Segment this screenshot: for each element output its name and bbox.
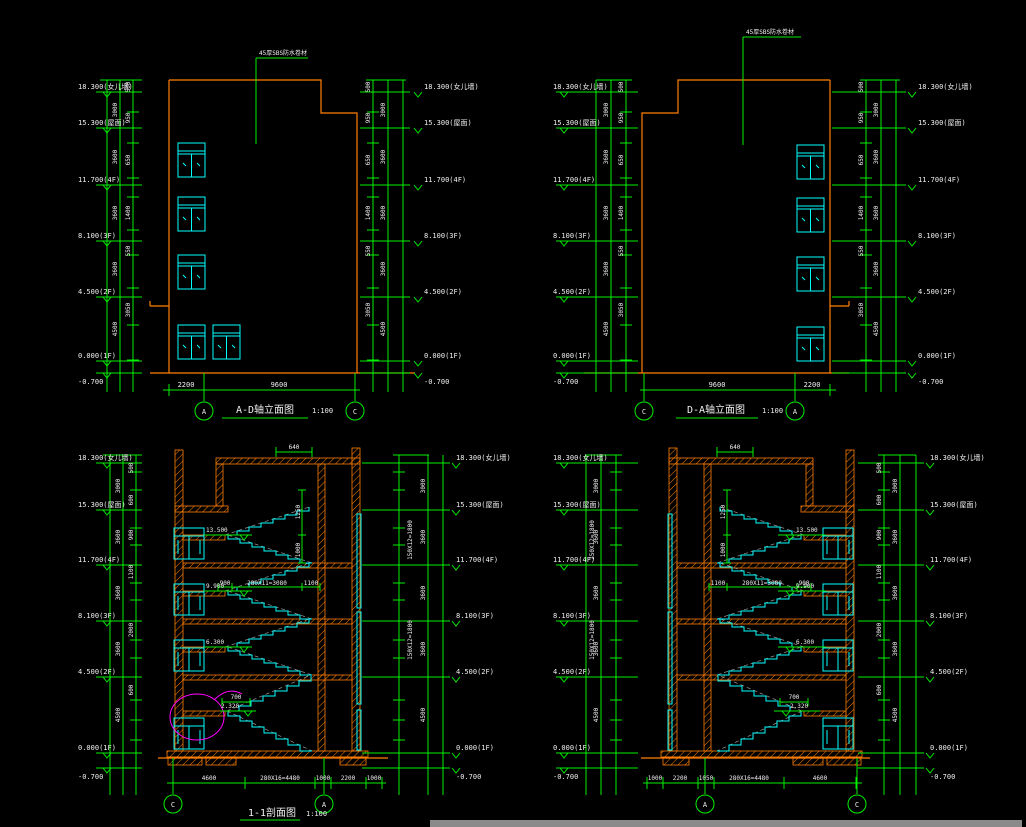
level-label: 4.500(2F): [78, 668, 116, 676]
dim-label: 950: [858, 112, 865, 123]
window: [797, 327, 824, 361]
dim-label: 1000: [367, 775, 382, 782]
scale-label: 1:100: [312, 407, 333, 415]
dim-label: 150X12=1800: [407, 620, 414, 660]
dim-label: 550: [618, 245, 625, 256]
wall: [704, 464, 711, 751]
dim-label: 900: [128, 529, 135, 540]
window: [178, 197, 205, 231]
elevation-a-d: 45厚SBS防水卷材 18.300(女儿墙) 15.300(屋面) 11.700…: [78, 49, 479, 420]
dim-label: 1000: [720, 542, 727, 557]
level-label: 4.500(2F): [553, 668, 591, 676]
dim-label: 600: [128, 684, 135, 695]
level-label: 0.000(1F): [78, 352, 116, 360]
horizontal-scrollbar[interactable]: [430, 820, 1022, 827]
dim-label: 600: [876, 684, 883, 695]
level-label: 18.300(女儿墙): [930, 453, 985, 462]
dim-label: 1000: [316, 775, 331, 782]
level-label: 8.100(3F): [553, 232, 591, 240]
landing-level-label: 9.900: [206, 583, 224, 590]
dim-label: 3600: [112, 205, 119, 220]
level-label: 4.500(2F): [456, 668, 494, 676]
window: [213, 325, 240, 359]
scale-label: 1:100: [306, 810, 327, 818]
wall: [806, 464, 813, 506]
leader-line: [743, 37, 801, 145]
level-label: 8.100(3F): [456, 612, 494, 620]
level-label: 4.500(2F): [78, 288, 116, 296]
landing-level-label: 9.900: [796, 583, 814, 590]
level-label: 8.100(3F): [424, 232, 462, 240]
level-label: -0.700: [424, 378, 449, 386]
dim-label: 3000: [603, 102, 610, 117]
dim-chain-right: [866, 80, 896, 392]
level-label: 15.300(屋面): [78, 501, 126, 509]
dim-label: 700: [789, 694, 800, 701]
dim-label: 3050: [618, 302, 625, 317]
roof-slab: [669, 458, 813, 464]
level-label: 11.700(4F): [78, 176, 120, 184]
level-label: -0.700: [78, 378, 103, 386]
level-label: 15.300(屋面): [930, 501, 978, 509]
level-label: 18.300(女儿墙): [456, 453, 511, 462]
window: [178, 255, 205, 289]
dim-chain-right: [373, 80, 403, 392]
dim-label: 9600: [709, 381, 726, 389]
dim-label: 650: [858, 154, 865, 165]
dim-label: 3600: [603, 149, 610, 164]
landing-level-label: 2.320: [790, 703, 808, 710]
level-label: 8.100(3F): [78, 612, 116, 620]
grid-bubble-label: A: [322, 801, 327, 809]
dim-label: 640: [289, 444, 300, 451]
dim-label: 3600: [112, 149, 119, 164]
level-label: 8.100(3F): [918, 232, 956, 240]
dim-label: 3600: [380, 149, 387, 164]
dim-label: 3000: [593, 478, 600, 493]
dim-ticks: [858, 455, 924, 768]
dim-label: 600: [876, 494, 883, 505]
floor-slab: [183, 675, 352, 680]
level-marks: [414, 92, 422, 378]
landing-slab: [183, 711, 225, 716]
stair-dim-label: 1100: [304, 580, 319, 587]
level-label: -0.700: [553, 378, 578, 386]
section-2: 640 1250 1000 1100 280X11=3080 900 13.50…: [553, 444, 985, 813]
window: [178, 325, 205, 359]
stair-dim-label: 1100: [711, 580, 726, 587]
dim-ticks: [832, 80, 906, 373]
dim-label: 1000: [295, 542, 302, 557]
scale-label: 1:100: [762, 407, 783, 415]
landing-level-label: 13.500: [796, 527, 818, 534]
level-label: 8.100(3F): [78, 232, 116, 240]
dim-label: 1250: [720, 504, 727, 519]
dim-label: 1100: [128, 564, 135, 579]
dim-label: 3600: [873, 205, 880, 220]
dim-label: 640: [730, 444, 741, 451]
floor-slab: [677, 619, 846, 624]
landing-level-label: 6.300: [206, 639, 224, 646]
level-label: 4.500(2F): [553, 288, 591, 296]
level-marks: [908, 92, 916, 378]
dim-label: 4500: [380, 321, 387, 336]
dim-label: 1050: [699, 775, 714, 782]
dim-label: 2200: [178, 381, 195, 389]
dim-label: 3600: [115, 529, 122, 544]
grid-bubble-label: C: [353, 408, 357, 416]
level-label: 4.500(2F): [930, 668, 968, 676]
level-label: 18.300(女儿墙): [78, 453, 133, 462]
dim-label: 1400: [365, 205, 372, 220]
floor-slab: [183, 563, 352, 568]
dim-label: 3000: [873, 102, 880, 117]
dim-chain-right: [884, 455, 916, 795]
dim-label: 1400: [125, 205, 132, 220]
dim-label: 4600: [813, 775, 828, 782]
dim-label: 2200: [341, 775, 356, 782]
leader-line: [256, 58, 308, 144]
section-1-1: 640 1250 1000 900 280X11=3080 1100 13.50…: [78, 444, 511, 820]
dim-label: 150X12=1800: [589, 620, 596, 660]
dim-label: 3000: [115, 478, 122, 493]
building-outline: [169, 80, 357, 373]
level-label: 15.300(屋面): [918, 119, 966, 127]
dim-label: 3600: [873, 261, 880, 276]
dim-label: 3600: [603, 261, 610, 276]
dim-label: 2200: [673, 775, 688, 782]
level-label: 15.300(屋面): [424, 119, 472, 127]
dim-label: 150X12=1800: [407, 520, 414, 560]
dim-label: 4600: [202, 775, 217, 782]
dim-label: 3600: [892, 529, 899, 544]
level-label: -0.700: [78, 773, 103, 781]
dim-label: 150X12=1800: [589, 520, 596, 560]
grid-bubble-label: A: [703, 801, 708, 809]
level-label: 0.000(1F): [918, 352, 956, 360]
level-label: -0.700: [456, 773, 481, 781]
level-label: 11.700(4F): [456, 556, 498, 564]
floor-slab: [183, 619, 352, 624]
wall: [175, 450, 183, 751]
dim-chain-right: [399, 455, 443, 795]
dim-label: 3600: [603, 205, 610, 220]
stair-flight: [228, 711, 312, 751]
dim-label: 650: [618, 154, 625, 165]
dim-label: 9600: [271, 381, 288, 389]
dim-label: 1400: [618, 205, 625, 220]
dim-label: 4500: [892, 707, 899, 722]
cad-viewport[interactable]: 45厚SBS防水卷材 18.300(女儿墙) 15.300(屋面) 11.700…: [0, 0, 1026, 827]
level-label: 0.000(1F): [424, 352, 462, 360]
landing-level-label: 13.500: [206, 527, 228, 534]
level-label: 11.700(4F): [424, 176, 466, 184]
stair-flight: [717, 711, 801, 751]
dim-label: 500: [618, 81, 625, 92]
dim-label: 3000: [420, 478, 427, 493]
roof-slab: [216, 458, 360, 464]
dim-label: 3600: [420, 529, 427, 544]
cad-window: 45厚SBS防水卷材 18.300(女儿墙) 15.300(屋面) 11.700…: [0, 0, 1026, 827]
grid-bubble-label: A: [793, 408, 798, 416]
dim-label: 950: [125, 112, 132, 123]
dim-label: 500: [876, 462, 883, 473]
dim-label: 550: [125, 245, 132, 256]
stair-dim-label: 280X11=3080: [247, 580, 287, 587]
dim-label: 280X16=4480: [260, 775, 300, 782]
wall: [669, 448, 677, 751]
dim-label: 900: [876, 529, 883, 540]
dim-label: 4500: [593, 707, 600, 722]
dim-label: 3600: [420, 641, 427, 656]
dim-label: 3600: [892, 641, 899, 656]
level-label: 0.000(1F): [930, 744, 968, 752]
dim-label: 700: [231, 694, 242, 701]
dim-label: 950: [618, 112, 625, 123]
dim-label: 2200: [804, 381, 821, 389]
dim-label: 3600: [420, 585, 427, 600]
dim-label: 3050: [858, 302, 865, 317]
level-label: 0.000(1F): [456, 744, 494, 752]
roof-note: 45厚SBS防水卷材: [746, 28, 794, 36]
level-label: 18.300(女儿墙): [553, 453, 608, 462]
dim-label: 4500: [420, 707, 427, 722]
roof-slab: [175, 506, 228, 512]
dim-label: 3600: [380, 205, 387, 220]
landing-level-label: 6.300: [796, 639, 814, 646]
window: [797, 198, 824, 232]
level-label: -0.700: [930, 773, 955, 781]
wall: [216, 464, 223, 506]
dim-label: 3600: [115, 641, 122, 656]
dim-label: 4500: [112, 321, 119, 336]
level-label: 11.700(4F): [78, 556, 120, 564]
grid-bubble-label: C: [171, 801, 175, 809]
level-label: 0.000(1F): [553, 744, 591, 752]
dim-label: 3600: [112, 261, 119, 276]
dim-label: 4500: [873, 321, 880, 336]
window: [178, 143, 205, 177]
drawing-title: D-A轴立面图: [687, 403, 745, 416]
dim-label: 3600: [873, 149, 880, 164]
ground-slab: [167, 751, 368, 757]
level-label: 11.700(4F): [918, 176, 960, 184]
building-outline: [642, 80, 830, 373]
dim-label: 3000: [112, 102, 119, 117]
drawing-title: A-D轴立面图: [236, 403, 294, 416]
dim-label: 3600: [593, 585, 600, 600]
dim-label: 1100: [876, 564, 883, 579]
dim-label: 4500: [603, 321, 610, 336]
dim-label: 3000: [892, 478, 899, 493]
level-label: 8.100(3F): [930, 612, 968, 620]
floor-slab: [677, 563, 846, 568]
dim-label: 1250: [295, 504, 302, 519]
dim-label: 2000: [128, 622, 135, 637]
level-label: 18.300(女儿墙): [553, 82, 608, 91]
level-label: 11.700(4F): [930, 556, 972, 564]
roof-note: 45厚SBS防水卷材: [259, 49, 307, 57]
dim-label: 500: [125, 81, 132, 92]
dim-label: 3600: [380, 261, 387, 276]
dim-label: 4500: [115, 707, 122, 722]
level-label: 15.300(屋面): [456, 501, 504, 509]
dim-label: 3050: [365, 302, 372, 317]
dim-label: 950: [365, 112, 372, 123]
stair-stringers: [717, 507, 804, 751]
floor-slab: [677, 675, 846, 680]
dim-label: 650: [125, 154, 132, 165]
level-label: 8.100(3F): [553, 612, 591, 620]
level-label: 0.000(1F): [553, 352, 591, 360]
dim-ticks: [362, 455, 450, 768]
dim-label: 550: [858, 245, 865, 256]
dim-label: 500: [858, 81, 865, 92]
grid-bubble-label: C: [642, 408, 646, 416]
dim-label: 600: [128, 494, 135, 505]
level-label: 15.300(屋面): [553, 119, 601, 127]
dim-label: 280X16=4480: [729, 775, 769, 782]
dim-label: 1000: [648, 775, 663, 782]
dim-label: 500: [365, 81, 372, 92]
dim-label: 2000: [876, 622, 883, 637]
wall: [318, 464, 325, 751]
level-label: 18.300(女儿墙): [424, 82, 479, 91]
dim-label: 3600: [115, 585, 122, 600]
grid-bubble-label: C: [855, 801, 859, 809]
grid-bubble-label: A: [202, 408, 207, 416]
dim-label: 1400: [858, 205, 865, 220]
landing-slab: [804, 711, 846, 716]
dim-label: 500: [128, 462, 135, 473]
drawing-title: 1-1剖面图: [248, 806, 296, 819]
level-label: 15.300(屋面): [78, 119, 126, 127]
level-label: 18.300(女儿墙): [918, 82, 973, 91]
dim-label: 650: [365, 154, 372, 165]
level-label: -0.700: [918, 378, 943, 386]
wall: [352, 448, 360, 751]
level-label: 11.700(4F): [553, 176, 595, 184]
ground-line: [150, 301, 415, 373]
level-label: 4.500(2F): [918, 288, 956, 296]
ground-slab: [661, 751, 862, 757]
level-label: 4.500(2F): [424, 288, 462, 296]
stair-dim-label: 280X11=3080: [742, 580, 782, 587]
dim-label: 3600: [892, 585, 899, 600]
window: [797, 145, 824, 179]
dim-label: 3050: [125, 302, 132, 317]
level-label: 0.000(1F): [78, 744, 116, 752]
level-label: -0.700: [553, 773, 578, 781]
window: [797, 257, 824, 291]
dim-label: 550: [365, 245, 372, 256]
dim-label: 3000: [380, 102, 387, 117]
elevation-d-a: 45厚SBS防水卷材 18.300(女儿墙) 15.300(屋面) 11.700…: [553, 28, 973, 420]
roof-slab: [801, 506, 854, 512]
level-label: 15.300(屋面): [553, 501, 601, 509]
landing-level-label: 2.320: [221, 703, 239, 710]
